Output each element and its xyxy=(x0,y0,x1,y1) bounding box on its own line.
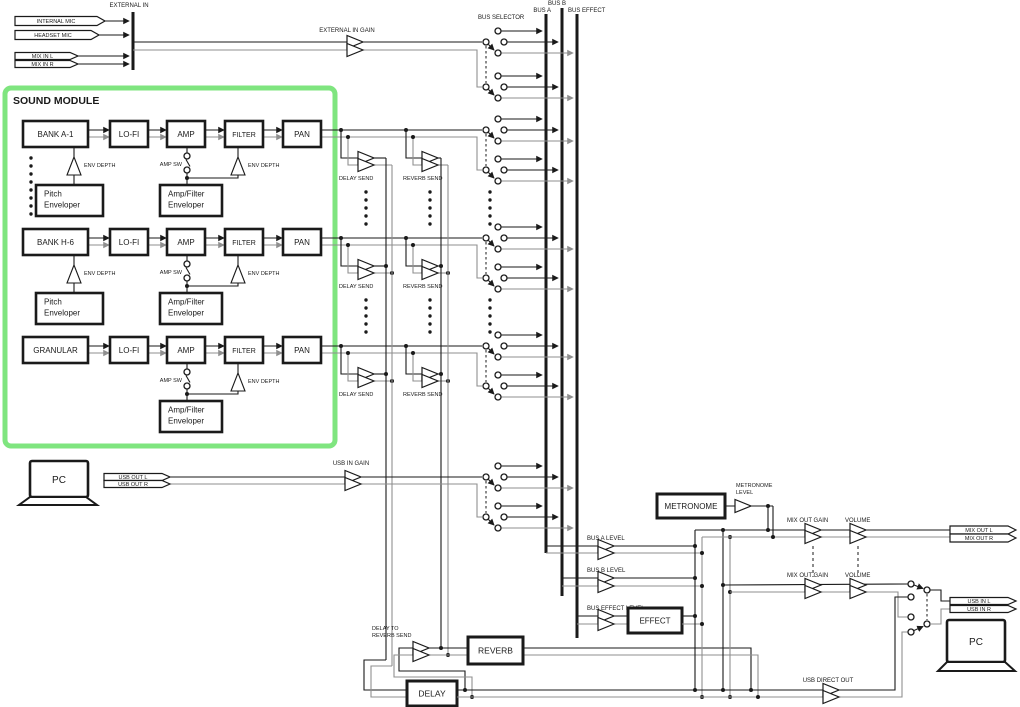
continuation-dots xyxy=(29,180,32,183)
switch-terminal xyxy=(908,594,914,600)
continuation-dots xyxy=(488,214,491,217)
switch-terminal xyxy=(495,525,501,531)
switch-terminal xyxy=(483,84,489,90)
switch-terminal xyxy=(184,275,190,281)
continuation-dots xyxy=(428,222,431,225)
continuation-dots xyxy=(364,206,367,209)
usb-in-gain-label: USB IN GAIN xyxy=(333,461,369,467)
switch-terminal xyxy=(483,167,489,173)
pc-laptop-base xyxy=(938,662,1015,671)
external-in-gain-label: EXTERNAL IN GAIN xyxy=(319,28,374,34)
reverb-send-label: REVERB SEND xyxy=(403,176,442,182)
switch-terminal xyxy=(908,629,914,635)
continuation-dots xyxy=(428,330,431,333)
continuation-dots xyxy=(364,306,367,309)
mix-out-gain-label: MIX OUT GAIN xyxy=(787,573,828,579)
bus-a-label: BUS A xyxy=(533,8,551,14)
continuation-dots xyxy=(428,306,431,309)
switch-terminal xyxy=(501,383,507,389)
label: LO-FI xyxy=(119,130,139,139)
mix-out-gain-label: MIX OUT GAIN xyxy=(787,518,828,524)
switch-terminal xyxy=(495,156,501,162)
env-depth-label: ENV DEPTH xyxy=(84,163,116,169)
label: Amp/Filter xyxy=(168,406,205,415)
junction-dot xyxy=(346,243,350,247)
continuation-dots xyxy=(488,206,491,209)
label: USB OUT R xyxy=(118,482,148,488)
continuation-dots xyxy=(29,164,32,167)
continuation-dots xyxy=(488,190,491,193)
continuation-dots xyxy=(364,314,367,317)
continuation-dots xyxy=(488,314,491,317)
amp-sw-label: AMP SW xyxy=(160,270,183,276)
label: AMP xyxy=(177,346,194,355)
continuation-dots xyxy=(428,190,431,193)
switch-terminal xyxy=(501,275,507,281)
junction-dot xyxy=(411,351,415,355)
bus-selector-label: BUS SELECTOR xyxy=(478,15,525,21)
label: MIX IN R xyxy=(31,62,53,68)
continuation-dots xyxy=(428,214,431,217)
label: DELAY xyxy=(418,689,446,699)
metronome-level-gain xyxy=(735,500,751,513)
label: INTERNAL MIC xyxy=(37,19,76,25)
junction-dot xyxy=(700,551,704,555)
switch-terminal xyxy=(483,343,489,349)
continuation-dots xyxy=(488,298,491,301)
switch-terminal xyxy=(495,503,501,509)
switch-terminal xyxy=(495,138,501,144)
label: HEADSET MIC xyxy=(34,33,72,39)
junction-dot xyxy=(749,688,753,692)
switch-terminal xyxy=(501,167,507,173)
bus-b-label: BUS B xyxy=(548,1,566,7)
env-depth-label: ENV DEPTH xyxy=(248,271,280,277)
label: MIX IN L xyxy=(32,54,53,60)
continuation-dots xyxy=(364,198,367,201)
switch-terminal xyxy=(483,514,489,520)
switch-terminal xyxy=(483,383,489,389)
continuation-dots xyxy=(364,222,367,225)
delay-send-label: DELAY SEND xyxy=(339,392,373,398)
switch-terminal xyxy=(495,246,501,252)
switch-terminal xyxy=(184,153,190,159)
label: Pitch xyxy=(44,298,62,307)
pc-label: PC xyxy=(969,637,983,648)
continuation-dots xyxy=(488,330,491,333)
label: FILTER xyxy=(232,132,256,139)
amp-sw-label: AMP SW xyxy=(160,162,183,168)
label: Pitch xyxy=(44,190,62,199)
junction-dot xyxy=(700,584,704,588)
switch-terminal xyxy=(495,224,501,230)
signal-flow-diagram-page: SOUND MODULEBUS ABUS BBUS EFFECTBUS SELE… xyxy=(0,0,1020,707)
junction-dot xyxy=(346,135,350,139)
continuation-dots xyxy=(29,212,32,215)
switch-terminal xyxy=(495,372,501,378)
junction-dot xyxy=(346,351,350,355)
label: Enveloper xyxy=(44,201,80,210)
switch-terminal xyxy=(495,178,501,184)
label: Enveloper xyxy=(168,309,204,318)
mix-section: BUS A LEVELBUS B LEVELBUS EFFECT LEVELEF… xyxy=(457,483,1016,704)
switch-terminal xyxy=(184,369,190,375)
switch-terminal xyxy=(483,275,489,281)
junction-dot xyxy=(700,622,704,626)
env-depth-label: ENV DEPTH xyxy=(248,163,280,169)
switch-terminal xyxy=(501,84,507,90)
switch-terminal xyxy=(495,332,501,338)
continuation-dots xyxy=(29,204,32,207)
junction-dot xyxy=(693,544,697,548)
pc-label: PC xyxy=(52,475,66,486)
continuation-dots xyxy=(364,214,367,217)
switch-terminal xyxy=(924,621,930,627)
junction-dot xyxy=(693,576,697,580)
metronome-level-label: LEVEL xyxy=(736,490,753,496)
usb-direct-out-label: USB DIRECT OUT xyxy=(803,678,854,684)
label: LO-FI xyxy=(119,346,139,355)
label: AMP xyxy=(177,130,194,139)
junction-dot xyxy=(404,236,408,240)
switch-terminal xyxy=(908,581,914,587)
continuation-dots xyxy=(488,198,491,201)
continuation-dots xyxy=(29,172,32,175)
junction-dot xyxy=(766,504,770,508)
switch-terminal xyxy=(483,474,489,480)
switch-terminal xyxy=(495,116,501,122)
label: MIX OUT R xyxy=(965,536,993,542)
audio-routing-diagram: SOUND MODULEBUS ABUS BBUS EFFECTBUS SELE… xyxy=(0,0,1020,707)
delay-send-label: DELAY SEND xyxy=(339,176,373,182)
junction-dot xyxy=(756,695,760,699)
junction-dot xyxy=(411,243,415,247)
junction-dot xyxy=(693,614,697,618)
delay-send-label: DELAY SEND xyxy=(339,284,373,290)
switch-terminal xyxy=(501,474,507,480)
switch-terminal xyxy=(495,73,501,79)
label: LO-FI xyxy=(119,238,139,247)
env-depth-label: ENV DEPTH xyxy=(248,379,280,385)
usb-input-section: PCUSB OUT LUSB OUT RUSB IN GAIN xyxy=(19,461,573,531)
label: PAN xyxy=(294,346,310,355)
pc-laptop-base xyxy=(19,497,97,505)
switch-terminal xyxy=(184,261,190,267)
label: METRONOME xyxy=(665,502,718,511)
junction-dot xyxy=(404,128,408,132)
label: REVERB xyxy=(478,646,513,656)
label: GRANULAR xyxy=(33,346,78,355)
switch-terminal xyxy=(495,28,501,34)
continuation-dots xyxy=(488,322,491,325)
switch-terminal xyxy=(501,39,507,45)
junction-dot xyxy=(339,236,343,240)
volume-label: VOLUME xyxy=(845,573,870,579)
switch-terminal xyxy=(495,394,501,400)
switch-terminal xyxy=(495,286,501,292)
continuation-dots xyxy=(364,190,367,193)
switch-terminal xyxy=(495,95,501,101)
bus-effect-label: BUS EFFECT xyxy=(568,8,606,14)
continuation-dots xyxy=(428,322,431,325)
continuation-dots xyxy=(428,198,431,201)
continuation-dots xyxy=(488,222,491,225)
metronome-level-label: METRONOME xyxy=(736,483,773,489)
label: Enveloper xyxy=(168,417,204,426)
label: Amp/Filter xyxy=(168,190,205,199)
switch-terminal xyxy=(501,235,507,241)
amp-sw-label: AMP SW xyxy=(160,378,183,384)
continuation-dots xyxy=(364,330,367,333)
delay-to-reverb-send-label: REVERB SEND xyxy=(372,633,411,639)
continuation-dots xyxy=(488,306,491,309)
junction-dot xyxy=(411,135,415,139)
label: AMP xyxy=(177,238,194,247)
switch-terminal xyxy=(184,383,190,389)
junction-dot xyxy=(339,128,343,132)
label: PAN xyxy=(294,238,310,247)
switch-terminal xyxy=(495,463,501,469)
continuation-dots xyxy=(428,206,431,209)
label: Amp/Filter xyxy=(168,298,205,307)
label: FILTER xyxy=(232,348,256,355)
label: USB IN L xyxy=(968,599,991,605)
continuation-dots xyxy=(29,156,32,159)
label: EFFECT xyxy=(639,617,670,626)
external-in-label: EXTERNAL IN xyxy=(109,3,148,9)
switch-terminal xyxy=(495,354,501,360)
switch-terminal xyxy=(184,167,190,173)
label: BANK H-6 xyxy=(37,238,74,247)
switch-terminal xyxy=(495,485,501,491)
switch-terminal xyxy=(924,587,930,593)
label: MIX OUT L xyxy=(965,528,992,534)
delay-to-reverb-send-label: DELAY TO xyxy=(372,626,399,632)
switch-terminal xyxy=(483,127,489,133)
switch-terminal xyxy=(908,614,914,620)
continuation-dots xyxy=(428,314,431,317)
label: Enveloper xyxy=(44,309,80,318)
continuation-dots xyxy=(29,196,32,199)
switch-terminal xyxy=(483,39,489,45)
switch-terminal xyxy=(495,50,501,56)
sound-module-title: SOUND MODULE xyxy=(13,95,99,107)
bus-a-level-label: BUS A LEVEL xyxy=(587,536,625,542)
label: USB IN R xyxy=(967,607,991,613)
switch-terminal xyxy=(501,343,507,349)
junction-dot xyxy=(339,344,343,348)
volume-label: VOLUME xyxy=(845,518,870,524)
junction-dot xyxy=(404,344,408,348)
continuation-dots xyxy=(29,188,32,191)
continuation-dots xyxy=(364,322,367,325)
label: Enveloper xyxy=(168,201,204,210)
reverb-send-label: REVERB SEND xyxy=(403,392,442,398)
switch-terminal xyxy=(483,235,489,241)
label: FILTER xyxy=(232,240,256,247)
continuation-dots xyxy=(364,298,367,301)
reverb-send-label: REVERB SEND xyxy=(403,284,442,290)
switch-terminal xyxy=(495,264,501,270)
bus-b-level-label: BUS B LEVEL xyxy=(587,568,626,574)
switch-terminal xyxy=(501,514,507,520)
env-depth-label: ENV DEPTH xyxy=(84,271,116,277)
continuation-dots xyxy=(428,298,431,301)
label: PAN xyxy=(294,130,310,139)
switch-terminal xyxy=(501,127,507,133)
label: BANK A-1 xyxy=(37,130,74,139)
